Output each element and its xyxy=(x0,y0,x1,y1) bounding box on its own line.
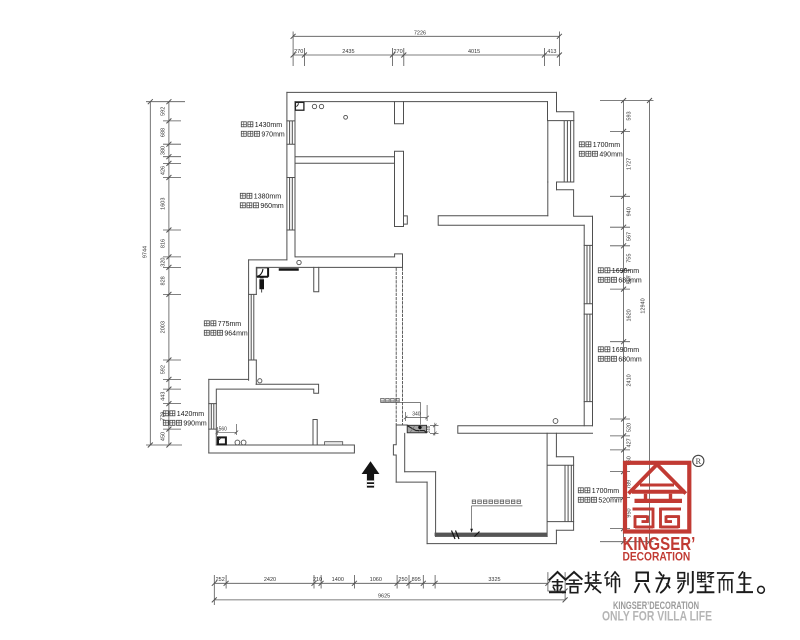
svg-text:270: 270 xyxy=(394,49,403,55)
svg-text:9625: 9625 xyxy=(378,594,390,600)
svg-text:593: 593 xyxy=(627,111,633,120)
svg-text:680mm: 680mm xyxy=(618,357,642,364)
svg-text:1727: 1727 xyxy=(627,158,633,170)
svg-text:775mm: 775mm xyxy=(218,321,242,328)
svg-text:2420: 2420 xyxy=(264,577,276,583)
svg-text:270: 270 xyxy=(294,49,303,55)
svg-text:450: 450 xyxy=(161,432,167,441)
svg-text:950: 950 xyxy=(627,508,633,517)
svg-text:1690mm: 1690mm xyxy=(612,268,639,275)
svg-text:2435: 2435 xyxy=(342,49,354,55)
svg-text:426: 426 xyxy=(161,166,167,175)
svg-text:427: 427 xyxy=(627,438,633,447)
svg-text:12940: 12940 xyxy=(641,298,647,313)
svg-text:1400: 1400 xyxy=(332,577,344,583)
svg-text:ONLY FOR VILLA LIFE: ONLY FOR VILLA LIFE xyxy=(602,607,712,623)
svg-text:340: 340 xyxy=(412,412,421,418)
svg-text:520mm: 520mm xyxy=(598,498,622,505)
svg-text:940: 940 xyxy=(627,207,633,216)
svg-text:1380mm: 1380mm xyxy=(254,194,281,201)
svg-text:4015: 4015 xyxy=(468,49,480,55)
svg-text:592: 592 xyxy=(161,107,167,116)
svg-text:320: 320 xyxy=(161,258,167,267)
svg-text:560: 560 xyxy=(219,427,228,433)
svg-text:1700mm: 1700mm xyxy=(592,488,619,495)
svg-text:7226: 7226 xyxy=(414,30,426,36)
svg-text:970mm: 970mm xyxy=(261,132,285,139)
svg-text:2410: 2410 xyxy=(627,374,633,386)
svg-text:567: 567 xyxy=(627,232,633,241)
svg-text:1603: 1603 xyxy=(161,198,167,210)
svg-text:DECORATION: DECORATION xyxy=(623,550,691,563)
svg-text:2003: 2003 xyxy=(161,321,167,333)
svg-text:240: 240 xyxy=(426,425,431,433)
svg-text:380: 380 xyxy=(161,146,167,155)
svg-text:1420mm: 1420mm xyxy=(177,411,204,418)
svg-text:828: 828 xyxy=(161,276,167,285)
svg-text:779: 779 xyxy=(161,412,167,421)
svg-text:252: 252 xyxy=(216,577,225,583)
svg-text:1700mm: 1700mm xyxy=(593,142,620,149)
svg-text:755: 755 xyxy=(627,254,633,263)
svg-text:895: 895 xyxy=(412,577,421,583)
svg-text:R: R xyxy=(695,456,701,466)
svg-text:490mm: 490mm xyxy=(599,152,623,159)
svg-text:990mm: 990mm xyxy=(183,421,207,428)
svg-text:964mm: 964mm xyxy=(224,331,248,338)
svg-text:1060: 1060 xyxy=(370,577,382,583)
svg-text:567: 567 xyxy=(627,275,633,284)
svg-text:688: 688 xyxy=(161,128,167,137)
svg-text:960mm: 960mm xyxy=(260,203,284,210)
svg-text:520: 520 xyxy=(627,423,633,432)
svg-text:413: 413 xyxy=(547,49,556,55)
svg-text:443: 443 xyxy=(161,392,167,401)
svg-text:592: 592 xyxy=(161,365,167,374)
svg-text:816: 816 xyxy=(161,239,167,248)
svg-text:1620: 1620 xyxy=(627,309,633,321)
svg-text:210: 210 xyxy=(313,577,322,583)
svg-text:9744: 9744 xyxy=(143,246,149,258)
svg-text:1690mm: 1690mm xyxy=(612,347,639,354)
svg-text:1430mm: 1430mm xyxy=(255,122,282,129)
svg-text:3325: 3325 xyxy=(488,577,500,583)
svg-text:250: 250 xyxy=(398,577,407,583)
